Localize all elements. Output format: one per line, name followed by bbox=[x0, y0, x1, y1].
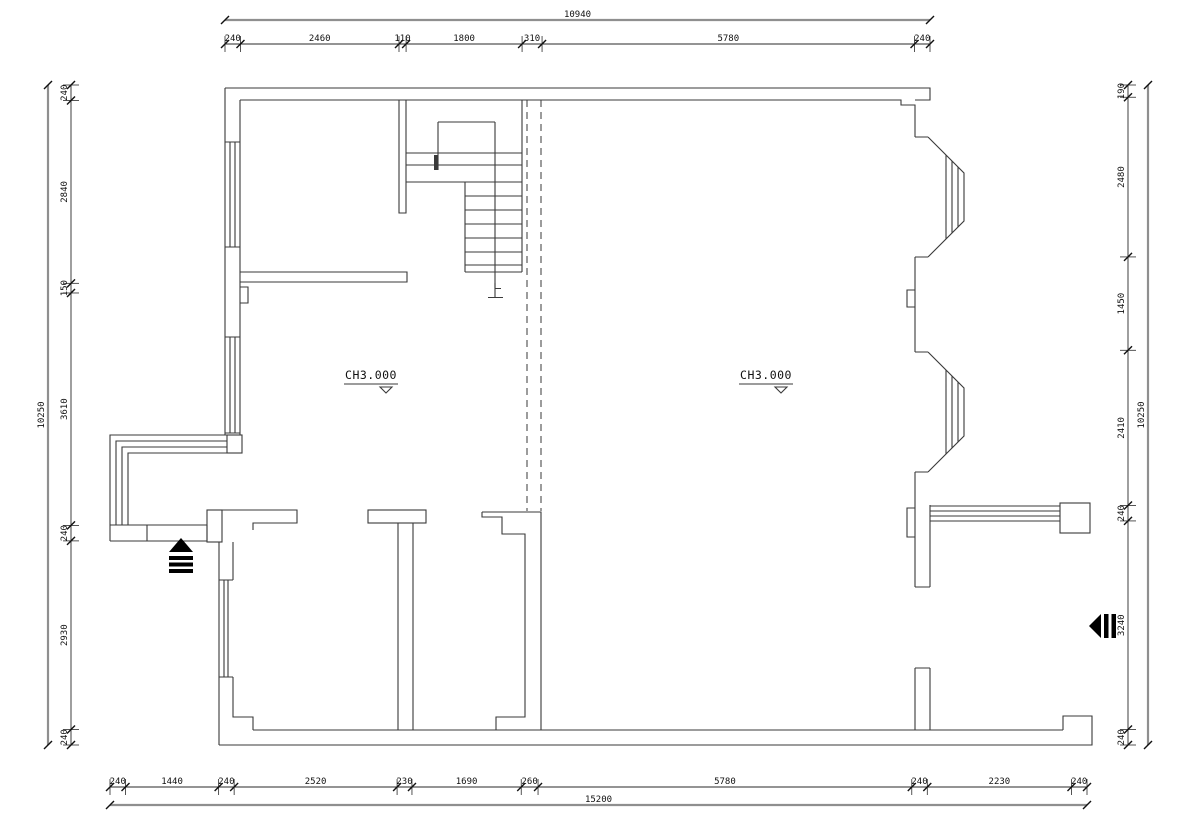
dim-label: 2480 bbox=[1117, 166, 1127, 188]
bay-window-upper bbox=[915, 137, 964, 257]
dim-label: 110 bbox=[394, 34, 410, 44]
entry-wall-pier bbox=[207, 510, 222, 542]
dim-label: 1440 bbox=[161, 777, 183, 787]
dim-label: 2520 bbox=[305, 777, 327, 787]
top-wall bbox=[225, 88, 930, 137]
outer-walls bbox=[219, 88, 1092, 745]
dim-label: 10940 bbox=[564, 10, 591, 20]
dim-label: 240 bbox=[110, 777, 126, 787]
dim-label: 2840 bbox=[60, 181, 70, 203]
hall-west-wall bbox=[482, 512, 541, 730]
dim-label: 240 bbox=[1117, 505, 1127, 521]
arrow-bar bbox=[1104, 614, 1109, 638]
middle-partition-cap bbox=[368, 510, 426, 523]
dim-label: 150 bbox=[60, 280, 70, 296]
elevation-text: CH3.000 bbox=[345, 368, 397, 382]
arrow-up-triangle bbox=[169, 538, 193, 552]
stair-landing bbox=[438, 122, 495, 288]
stair-up-glyph bbox=[488, 283, 503, 298]
bottom-dimension-chain: 2401440240252023016902605780240223024015… bbox=[106, 777, 1091, 809]
elevation-label-left: CH3.000 bbox=[344, 368, 398, 393]
dim-label: 10250 bbox=[37, 401, 47, 428]
middle-partition-stem bbox=[398, 523, 413, 730]
window-upper bbox=[225, 142, 240, 247]
upper-room-south-wall bbox=[240, 272, 407, 282]
dim-label: 1450 bbox=[1117, 293, 1127, 315]
entry-arrow-bottom-left bbox=[169, 538, 193, 573]
balcony-corner-block bbox=[227, 435, 242, 453]
staircase bbox=[406, 100, 522, 298]
arrow-bar bbox=[169, 556, 193, 560]
dim-label: 240 bbox=[60, 85, 70, 101]
ledge-end-block bbox=[1060, 503, 1090, 533]
dim-label: 240 bbox=[911, 777, 927, 787]
bay-lower-lines bbox=[915, 352, 964, 472]
dim-label: 3240 bbox=[1117, 614, 1127, 636]
right-wall bbox=[915, 257, 930, 730]
dashed-projection-lines bbox=[527, 100, 541, 511]
balcony-railing bbox=[110, 435, 227, 525]
dim-label: 240 bbox=[914, 34, 930, 44]
left-wall-windows bbox=[225, 142, 248, 433]
window-ledge-bottom-right bbox=[930, 503, 1090, 533]
dim-label: 260 bbox=[522, 777, 538, 787]
dim-label: 15200 bbox=[585, 795, 612, 805]
overhead-beam-dashes bbox=[527, 100, 541, 511]
dim-label: 230 bbox=[396, 777, 412, 787]
elevation-triangle bbox=[775, 387, 787, 393]
elevation-label-right: CH3.000 bbox=[739, 368, 793, 393]
dim-label: 2230 bbox=[989, 777, 1011, 787]
arrow-bar bbox=[169, 569, 193, 573]
balcony-parapet bbox=[110, 525, 207, 541]
dim-label: 240 bbox=[60, 525, 70, 541]
dim-label: 2930 bbox=[60, 624, 70, 646]
interior-walls bbox=[207, 100, 541, 730]
arrow-bar bbox=[1112, 614, 1117, 638]
dim-label: 310 bbox=[524, 34, 540, 44]
dim-label: 2460 bbox=[309, 34, 331, 44]
left-wall bbox=[225, 88, 240, 435]
dim-label: 240 bbox=[1117, 729, 1127, 745]
stair-enclosure-wall bbox=[399, 100, 406, 213]
elevation-triangle bbox=[380, 387, 392, 393]
window-lower bbox=[225, 337, 240, 433]
elevation-text: CH3.000 bbox=[740, 368, 792, 382]
dim-label: 2410 bbox=[1117, 417, 1127, 439]
floor-plan-canvas: CH3.000 CH3.000 240246011018003105780240… bbox=[0, 0, 1200, 817]
bay-upper-lines bbox=[915, 137, 964, 257]
stair-wide-treads bbox=[406, 153, 522, 182]
dim-label: 5780 bbox=[714, 777, 736, 787]
left-dimension-chain: 24028401503610240293024010250 bbox=[37, 81, 79, 749]
stair-arrow-tail bbox=[434, 155, 439, 170]
entry-arrow-right bbox=[1089, 614, 1116, 638]
dim-label: 240 bbox=[60, 729, 70, 745]
dim-label: 3610 bbox=[60, 398, 70, 420]
room-left-window bbox=[219, 580, 233, 677]
dim-label: 5780 bbox=[717, 34, 739, 44]
floor-plan-svg: CH3.000 CH3.000 240246011018003105780240… bbox=[0, 0, 1200, 817]
ledge-lines bbox=[930, 506, 1060, 521]
dim-label: 10250 bbox=[1137, 401, 1147, 428]
stair-treads bbox=[465, 182, 522, 272]
bay-window-lower bbox=[915, 352, 964, 472]
dim-label: 1800 bbox=[453, 34, 475, 44]
right-dimension-chain: 190248014502410240324024010250 bbox=[1117, 81, 1152, 749]
bottom-left-room-walls bbox=[219, 542, 253, 745]
dim-label: 190 bbox=[1117, 83, 1127, 99]
arrow-left-triangle bbox=[1089, 614, 1101, 638]
right-wall-notches bbox=[907, 290, 915, 537]
top-dimension-chain: 24024601101800310578024010940 bbox=[221, 10, 934, 52]
dim-label: 240 bbox=[225, 34, 241, 44]
arrow-bar bbox=[169, 563, 193, 567]
bottom-wall bbox=[219, 716, 1092, 745]
dim-label: 240 bbox=[1071, 777, 1087, 787]
entry-wall-cap bbox=[222, 510, 297, 530]
wall-jog bbox=[240, 287, 248, 303]
dim-label: 240 bbox=[218, 777, 234, 787]
dim-label: 1690 bbox=[456, 777, 478, 787]
